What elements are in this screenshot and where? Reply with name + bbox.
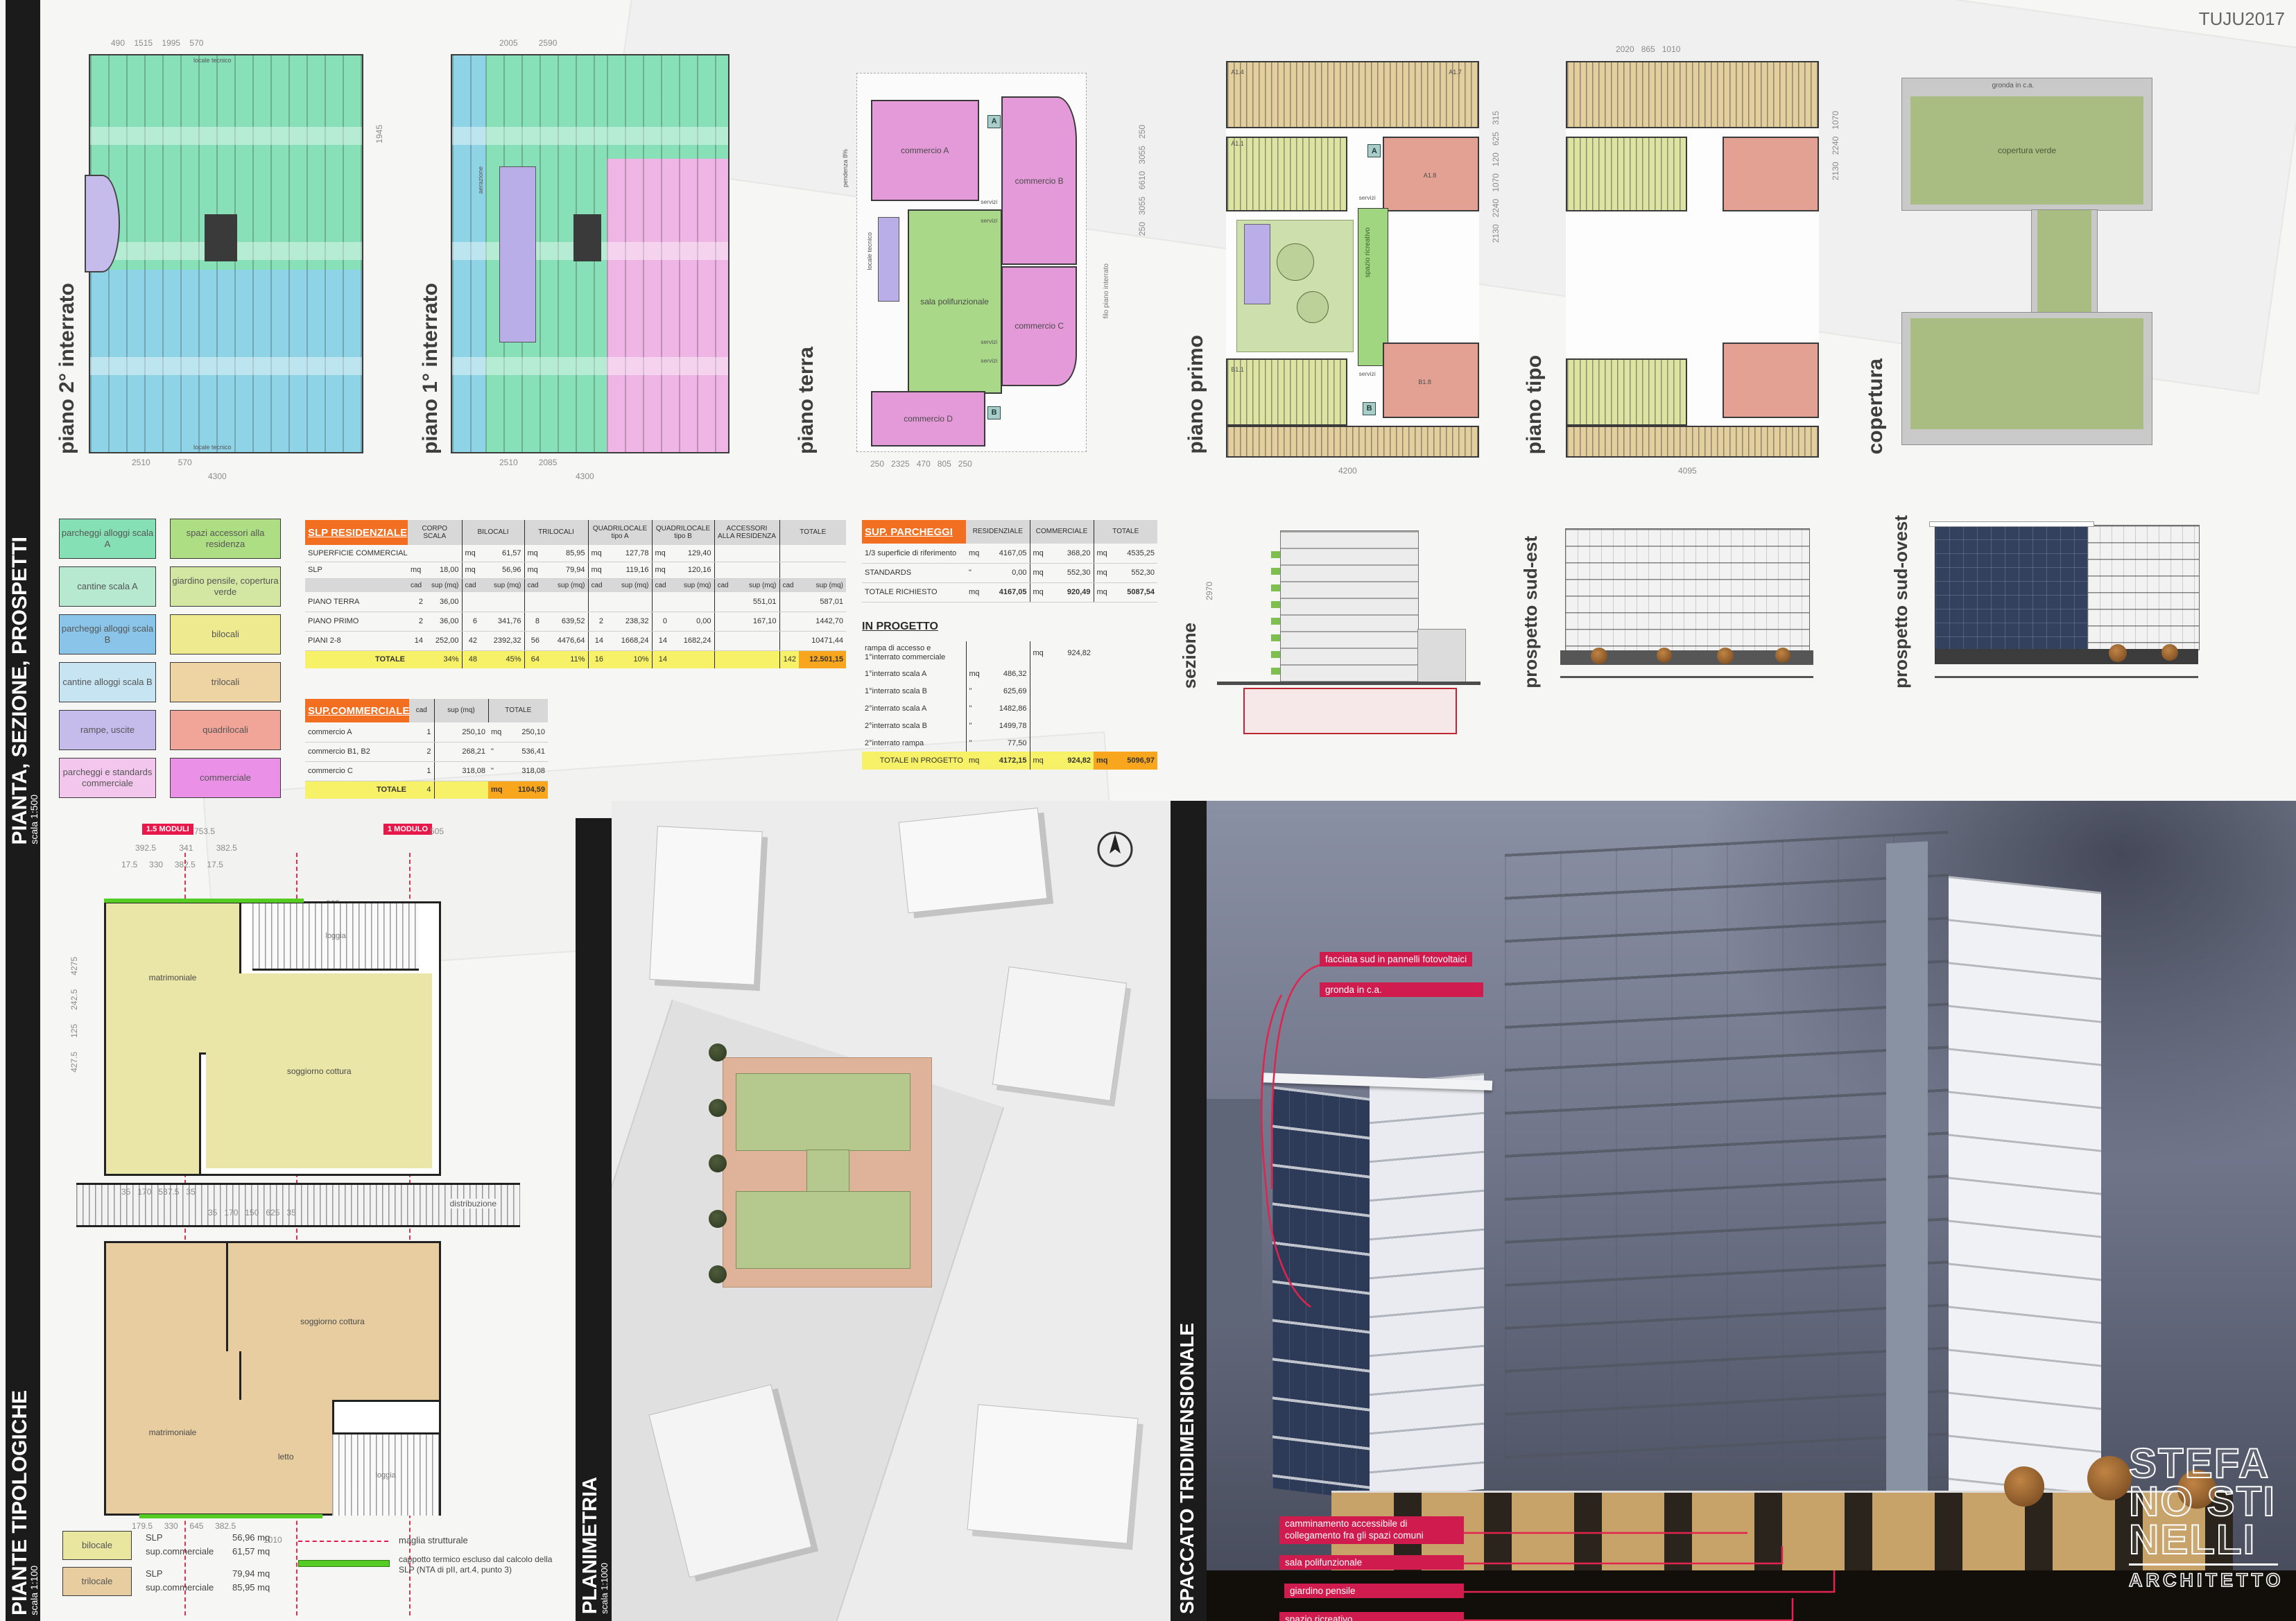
servizi-label: servizi [1359,194,1376,201]
tree-icon [1717,648,1734,664]
cell: mq [966,582,983,602]
dimension: 1945 [374,125,384,144]
cell: 6 [462,612,480,631]
cell: " [966,700,983,717]
subheader: sup (mq) [480,578,524,592]
stair-core [205,214,237,262]
marker-a-letter: A [992,117,997,125]
trilocale-swatch: trilocale [62,1567,132,1596]
stair-core [573,214,601,262]
tree-icon [709,1210,727,1228]
dimension: 2005 2590 [499,38,557,48]
subheader: cad [714,578,734,592]
commercio-c-room: commercio C [1001,266,1078,386]
cell: 4476,64 [542,631,588,650]
module-tag-15: 1.5 MODULI [142,824,193,835]
col-header: BILOCALI [462,520,524,545]
commercio-a-label: commercio A [901,146,949,155]
cell: 1482,86 [983,700,1030,717]
legend-label: quadrilocali [202,725,248,736]
cell: 4167,05 [983,544,1030,563]
roof-green-top: copertura verde [1910,96,2143,205]
commercio-b-room: commercio B [1001,96,1078,266]
cell [1046,682,1094,700]
grand-total-cell: 5096,97 [1110,752,1157,770]
total-label: TOTALE [305,650,408,668]
spaccato-bar: SPACCATO TRIDIMENSIONALE [1171,801,1207,1621]
plan-piano-2-interrato: locale tecnico locale tecnico [89,54,363,453]
basement-level-1 [1243,688,1457,713]
subheader: cad [588,578,606,592]
maglia-strutturale-line [298,1541,388,1542]
cell: mq [1030,752,1046,770]
cell: 36,00 [426,612,462,631]
ramp [1244,224,1271,304]
soggiorno-label: soggiorno cottura [300,1317,365,1326]
col-header: CORPO SCALA [408,520,462,545]
cell: 318,08 [505,761,548,781]
cell: mq [488,722,505,742]
soggiorno-cottura: soggiorno cottura [206,973,432,1168]
marker-b-letter: B [1367,404,1372,413]
plan-piano-tipo [1566,61,1819,458]
bilocale-plan: matrimoniale loggia soggiorno cottura [104,901,441,1176]
row-label: commercio B1, B2 [305,742,409,761]
cell: 551,01 [734,592,779,612]
roof-bottom-bar [1901,312,2152,445]
cell: mq [652,545,670,562]
in-progetto-table: rampa di accesso e 1°interrato commercia… [862,641,1157,770]
dimension: 490 1515 1995 570 [111,38,203,48]
subheader: cad [462,578,480,592]
cell [1094,734,1110,752]
cell [462,592,480,612]
units-band-outer-top [1566,61,1819,128]
dimension: 4300 [576,471,594,481]
unit-label: B1.1 [1231,366,1244,373]
legend-label: parcheggi e standards commerciale [61,767,154,790]
cell [734,545,779,562]
dimension: 427.5 125 242.5 4275 [69,957,79,1073]
cell: 120,16 [670,562,714,578]
cell [779,631,799,650]
tree-icon [709,1099,727,1117]
site-building [967,1404,1139,1544]
cell: 2392,32 [480,631,524,650]
dimension: 4300 [208,471,227,481]
dimension: 179.5 330 645 382.5 [132,1521,236,1531]
cell: mq [1030,641,1046,665]
quadrilocale-unit [1723,343,1819,418]
cell: 368,20 [1046,544,1094,563]
tree-icon [709,1043,727,1061]
legend-item: trilocali [170,662,281,702]
cell [652,592,670,612]
col-header: cad [409,699,434,722]
roof-green-connector [2037,210,2091,313]
plan-title-copertura: copertura [1864,358,1888,454]
cell: mq [1030,563,1046,582]
row-label: commercio A [305,722,409,742]
cell: 56 [524,631,542,650]
project-roof-connector [806,1150,849,1193]
module-tag-1: 1 MODULO [383,824,432,835]
camera-letto: letto [239,1400,334,1514]
sidebar-section-scale: scala 1:500 [28,795,40,844]
cell [1030,700,1046,717]
col-header: sup (mq) [434,699,488,722]
prospetto-sud-ovest-label: prospetto sud-ovest [1890,515,1912,688]
cell [1110,665,1157,682]
cell: 4172,15 [983,752,1030,770]
legend-item: spazi accessori alla residenza [170,519,281,559]
slp-label: SLP [146,1568,163,1579]
col-header: COMMERCIALE [1030,520,1094,544]
cell: 0,00 [670,612,714,631]
dimension: 35 170 537.5 35 [121,1187,196,1197]
basement-level-2 [1243,711,1457,734]
cell: 1668,24 [606,631,652,650]
tree-icon [2109,644,2127,662]
bagno [106,1052,201,1174]
cell: 341,76 [480,612,524,631]
unit-label: A1.4 [1231,69,1244,76]
bilocale-swatch-label: bilocale [82,1540,112,1551]
parking-aisle [452,357,728,375]
sidebar-section-scale: scala 1:100 [28,1566,40,1615]
cell [1094,641,1110,665]
tree-plan-icon [1277,243,1314,281]
cell [480,592,524,612]
loggia-label: loggia [376,1471,396,1480]
cell: mq [966,752,983,770]
commercio-a-room: commercio A [871,100,979,201]
cell: 920,49 [1046,582,1094,602]
legend-label: giardino pensile, copertura verde [172,575,279,598]
cell [1046,734,1094,752]
matrimoniale-label: matrimoniale [149,973,197,982]
section-balconies [1271,551,1280,682]
marker-b-letter: B [992,408,997,417]
tree-plan-icon [1297,291,1329,323]
legend-label: commerciale [200,772,251,783]
legend-item: parcheggi alloggi scala B [59,614,156,655]
plan-piano-1-interrato: aerazione [451,54,730,453]
legend-label: spazi accessori alla residenza [172,528,279,551]
cell [779,562,799,578]
legend-label: bilocali [212,629,239,640]
project-plaza [723,1057,932,1288]
cell: 4535,25 [1110,544,1157,563]
loggia: loggia [332,1432,439,1516]
cell: 639,52 [542,612,588,631]
col-header: TRILOCALI [524,520,588,545]
cell [714,650,734,668]
cell: 924,82 [1046,641,1094,665]
ramp-arc [85,175,120,272]
supc-value: 85,95 mq [232,1582,270,1593]
section-marker-a: A [1367,144,1381,157]
sala-polifunzionale-label: sala polifunzionale [920,297,989,306]
distribuzione-label: distribuzione [447,1199,499,1208]
cell: 268,21 [434,742,488,761]
servizi-label: servizi [981,338,997,345]
supc-value: 61,57 mq [232,1546,270,1557]
cell [734,631,779,650]
pv-facade [1935,525,2089,650]
cell: 79,94 [542,562,588,578]
parking-aisle [452,127,728,145]
plan-piano-terra: commercio A sala polifunzionale commerci… [856,73,1087,452]
dimension: 2020 865 1010 [1616,44,1680,54]
cell: 14 [408,631,426,650]
cell: 250,10 [434,722,488,742]
in-progetto-title: IN PROGETTO [862,621,938,633]
subheader: cad [524,578,542,592]
cell [1030,665,1046,682]
cell: 924,82 [1046,752,1094,770]
cell [588,592,606,612]
annotation-sala: sala polifunzionale [1279,1555,1464,1570]
dimension: 2130 2240 1070 120 625 315 [1491,111,1501,243]
ground-line [1560,676,1813,678]
servizi-label: servizi [981,217,997,224]
cell [1094,682,1110,700]
tree-icon [709,1265,727,1283]
cell: 119,16 [606,562,652,578]
cappotto-note: cappotto termico escluso dal calcolo del… [399,1554,558,1575]
legend-item: parcheggi alloggi scala A [59,519,156,559]
cell: 1682,24 [670,631,714,650]
prospetto-sud-ovest-drawing [1935,521,2198,689]
subheader: cad [652,578,670,592]
cell: 10471,44 [799,631,846,650]
dimension: 392.5 341 382.5 [135,843,237,853]
annotation-giardino: giardino pensile [1284,1584,1464,1598]
cell [408,545,426,562]
col-header: ACCESSORI ALLA RESIDENZA [714,520,779,545]
grand-total-cell: 12.501,15 [799,650,846,668]
cell: 14 [652,631,670,650]
presentation-board: TUJU2017 PIANTA, SEZIONE, PROSPETTI scal… [0,0,2296,1621]
facade [2087,525,2200,650]
sezione-drawing: 2970 [1217,530,1481,735]
cell: mq [966,544,983,563]
cell: 4167,05 [983,582,1030,602]
cell [1110,641,1157,665]
cell: mq [462,545,480,562]
cappotto-line [298,1560,390,1567]
cell: 1 [409,722,434,742]
tree-icon [709,1154,727,1172]
servizi-label: servizi [981,198,997,205]
cell [714,631,734,650]
locale-tecnico-label: locale tecnico [866,232,873,270]
cell [1094,717,1110,734]
cell: 0 [652,612,670,631]
subheader: sup (mq) [670,578,714,592]
site-building [649,826,762,985]
row-label: 1/3 superficie di riferimento [862,544,966,563]
plan-title-piano-primo: piano primo [1184,335,1208,454]
ramp [878,217,900,302]
cell: 2 [409,742,434,761]
cell [779,545,799,562]
legend-item: rampe, uscite [59,710,156,750]
row-label: PIANI 2-8 [305,631,408,650]
cell [734,650,779,668]
cell: 36,00 [426,592,462,612]
cell [1094,665,1110,682]
cell [1030,734,1046,752]
col-header: TOTALE [488,699,548,722]
cell: " [966,734,983,752]
total-label: TOTALE IN PROGETTO [862,752,966,770]
supc-label: sup.commerciale [146,1582,214,1593]
matrimoniale-label: matrimoniale [149,1428,197,1437]
site-plan [612,801,1171,1621]
dimension: 2510 570 [132,458,192,467]
cell [1030,682,1046,700]
cell: " [966,563,983,582]
cell: 587,01 [799,592,846,612]
row-label: 1°interrato scala B [862,682,966,700]
loggia-label: loggia [326,932,346,940]
annotation-spazio: spazio ricreativo [1279,1612,1464,1621]
col-header: QUADRILOCALE tipo A [588,520,652,545]
subheader: sup (mq) [426,578,462,592]
trilocale-swatch-label: trilocale [82,1576,113,1587]
roof-connector [2031,209,2098,313]
legend-item: cantine alloggi scala B [59,662,156,702]
copertura-verde-label: copertura verde [1998,146,2056,155]
col-header: QUADRILOCALE tipo B [652,520,714,545]
legend-label: parcheggi alloggi scala B [61,623,154,646]
dimension: 250 2325 470 805 250 [870,459,972,469]
cell: " [488,742,505,761]
cell [670,592,714,612]
cell: mq [1030,544,1046,563]
units-band-outer-bottom [1566,426,1819,458]
ramp [499,166,537,343]
units-band-inner-bottom [1566,358,1687,426]
cell: " [966,717,983,734]
cell [426,545,462,562]
cell: mq [1094,563,1110,582]
col-header: RESIDENZIALE [966,520,1030,544]
cell: 238,32 [606,612,652,631]
cell [542,592,588,612]
row-label: rampa di accesso e 1°interrato commercia… [862,641,966,665]
quadrilocale-unit [1723,137,1819,212]
slp-residenziale-table: SLP RESIDENZIALE CORPO SCALA BILOCALI TR… [305,520,846,668]
table-title: SUP. PARCHEGGI [862,520,966,544]
cappotto-strip [104,899,304,903]
cell [714,545,734,562]
cell [1046,700,1094,717]
section-annex [1417,629,1466,684]
legend-item: giardino pensile, copertura verde [170,566,281,607]
table-title: SLP RESIDENZIALE [305,520,408,545]
filo-piano-interrato-label: filo piano interrato [1103,263,1110,319]
cell: 486,32 [983,665,1030,682]
row-label: SUPERFICIE COMMERCIALE [305,545,408,562]
cell: " [966,682,983,700]
cell: 552,30 [1046,563,1094,582]
total-label: TOTALE [305,781,409,799]
cell [799,545,846,562]
cell [1110,682,1157,700]
cell: 2 [408,592,426,612]
logo-line-2: NO STI [2129,1482,2284,1520]
legend-label: cantine alloggi scala B [62,677,152,688]
dimension: 35 170 150 625 35 [208,1208,296,1217]
cell [1094,700,1110,717]
cell: 10% [606,650,652,668]
cell: mq [488,781,505,799]
cell: mq [652,562,670,578]
cell [714,592,734,612]
subheader: sup (mq) [542,578,588,592]
row-label: PIANO PRIMO [305,612,408,631]
commercio-c-label: commercio C [1015,321,1064,331]
cell: 8 [524,612,542,631]
cell: mq [524,562,542,578]
commercio-d-room: commercio D [871,391,986,447]
letto-label: letto [278,1452,294,1462]
cell: 1442,70 [799,612,846,631]
section-marker-b: B [987,406,1001,419]
cell: 142 [779,650,799,668]
pendenza-label: pendenza 8% [842,149,849,187]
row-label: 2°interrato scala A [862,700,966,717]
cell [1046,665,1094,682]
subheader-empty [305,578,408,592]
legend-label: trilocali [212,677,239,688]
dimension: 2130 2240 1070 [1831,111,1840,180]
cell: 42 [462,631,480,650]
cell: 167,10 [734,612,779,631]
cell: 48 [462,650,480,668]
subheader: sup (mq) [734,578,779,592]
cell: 18,00 [426,562,462,578]
section-marker-b: B [1363,402,1376,415]
ground-line [1217,682,1481,685]
servizi-label: servizi [1359,370,1376,377]
cell: 250,10 [505,722,548,742]
legend-item: quadrilocali [170,710,281,750]
cell: 14 [588,631,606,650]
legend-label: rampe, uscite [80,725,135,736]
compass-north-icon [1096,830,1134,869]
row-label: 2°interrato rampa [862,734,966,752]
plan-title-piano-1-interrato: piano 1° interrato [419,283,442,454]
cell: 2 [588,612,606,631]
ground-line [1935,676,2198,678]
cell: 1499,78 [983,717,1030,734]
project-roof-bottom [736,1191,910,1269]
cell: 77,50 [983,734,1030,752]
dimension: 4200 [1338,466,1357,476]
commercial-parking-zone [607,159,728,452]
cell [714,562,734,578]
col-header: TOTALE [779,520,846,545]
dimension: 753.5 [194,826,215,836]
supc-label: sup.commerciale [146,1546,214,1557]
marker-a-letter: A [1372,147,1377,155]
tree-icon [1657,648,1672,663]
cell: 318,08 [434,761,488,781]
